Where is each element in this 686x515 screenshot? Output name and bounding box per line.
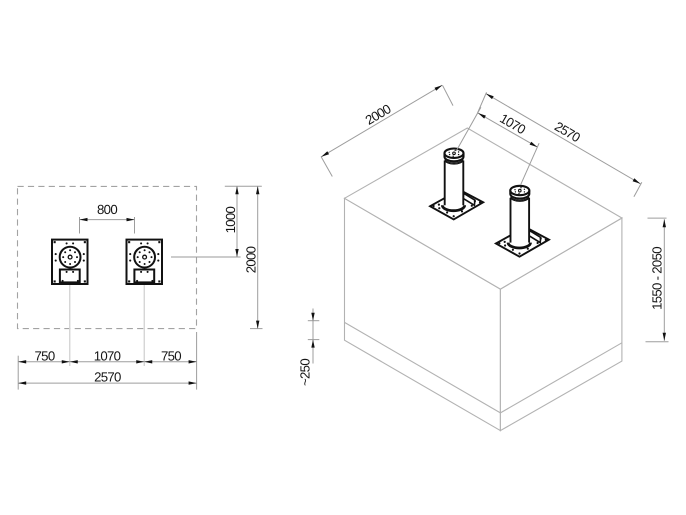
svg-text:2570: 2570: [94, 369, 121, 384]
svg-text:2000: 2000: [244, 246, 259, 273]
svg-text:1070: 1070: [94, 348, 121, 363]
svg-text:800: 800: [97, 202, 117, 217]
svg-text:1550 - 2050: 1550 - 2050: [650, 247, 665, 310]
svg-text:~250: ~250: [297, 359, 312, 386]
svg-text:1000: 1000: [223, 206, 238, 233]
svg-text:750: 750: [161, 348, 181, 363]
svg-text:750: 750: [35, 348, 55, 363]
